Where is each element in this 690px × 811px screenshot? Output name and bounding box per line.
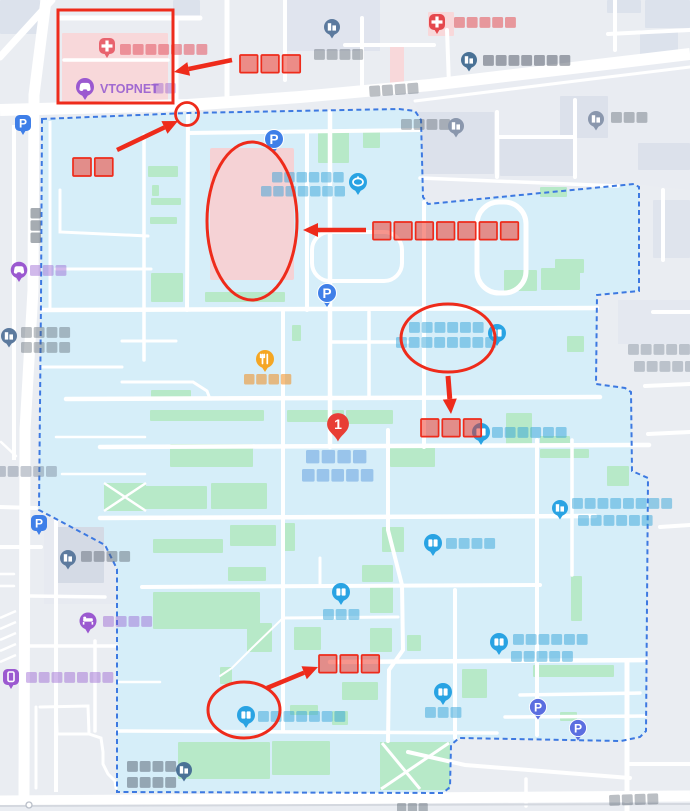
- svg-text:VTOPNET: VTOPNET: [100, 82, 159, 96]
